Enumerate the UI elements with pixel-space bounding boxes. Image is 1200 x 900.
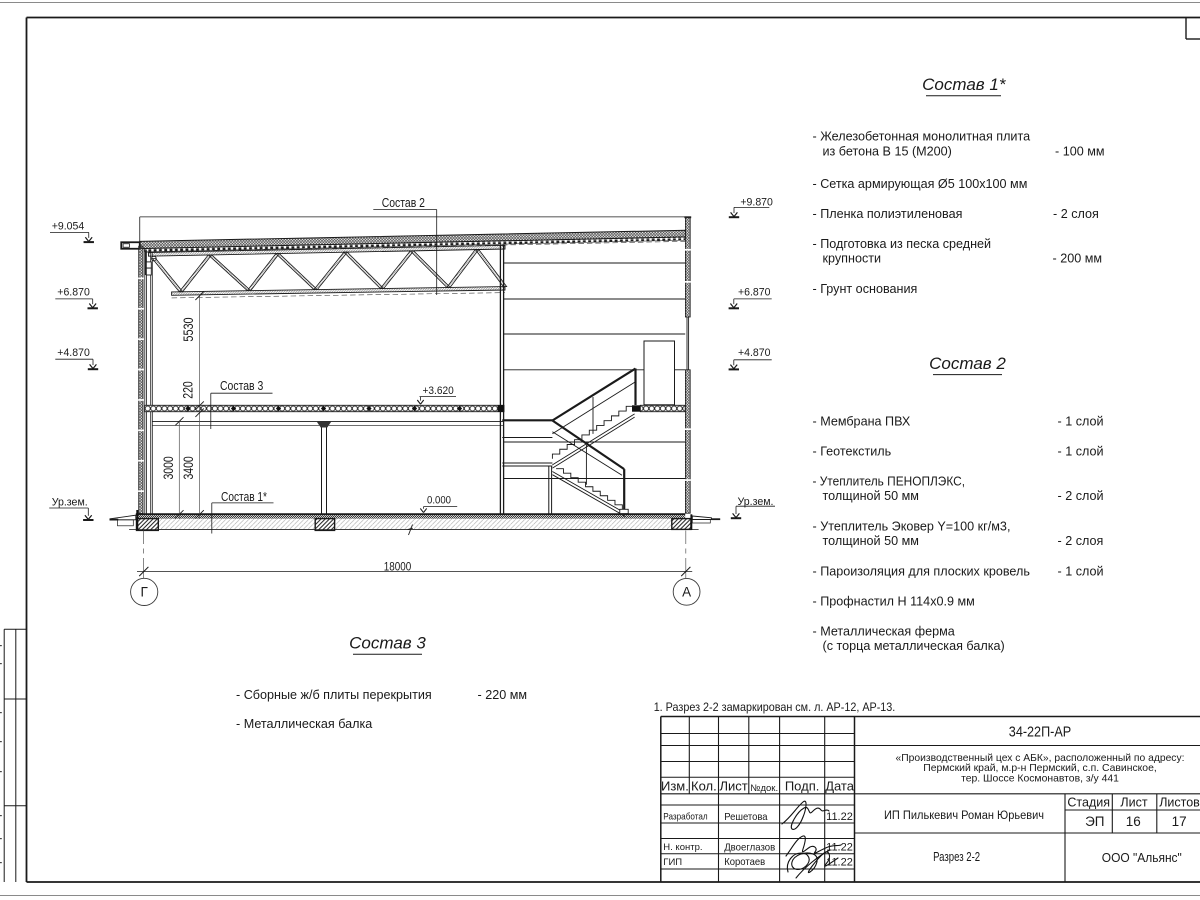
svg-text:3400: 3400 [180, 456, 196, 479]
svg-text:34-22П-АР: 34-22П-АР [1009, 724, 1071, 740]
svg-text:- Сетка армирующая Ø5 100х100: - Сетка армирующая Ø5 100х100 мм [813, 177, 1028, 191]
svg-text:+6.870: +6.870 [738, 286, 771, 298]
svg-text:из бетона В 15 (М200): из бетона В 15 (М200) [823, 144, 952, 158]
svg-text:- Утеплитель Эковер Y=100 кг/м: - Утеплитель Эковер Y=100 кг/м3, [813, 519, 1011, 533]
svg-text:Коротаев: Коротаев [724, 856, 765, 868]
svg-text:- Пароизоляция для плоских кро: - Пароизоляция для плоских кровель [813, 564, 1031, 578]
svg-text:- Пленка полиэтиленовая: - Пленка полиэтиленовая [813, 207, 963, 221]
svg-text:- Железобетонная монолитная п: - Железобетонная монолитная плита [813, 130, 1031, 144]
svg-text:11.22: 11.22 [826, 811, 853, 823]
svg-text:Подп.: Подп. [785, 778, 820, 793]
svg-text:- Профнастил Н 114х0.9 мм: - Профнастил Н 114х0.9 мм [813, 594, 975, 608]
svg-text:Лист: Лист [1120, 796, 1147, 810]
svg-text:толщиной 50 мм: толщиной 50 мм [823, 534, 919, 548]
svg-text:17: 17 [1172, 814, 1187, 829]
svg-text:Двоеглазов: Двоеглазов [724, 841, 775, 853]
svg-text:Разработал: Разработал [663, 812, 707, 823]
svg-text:толщиной 50 мм: толщиной 50 мм [823, 489, 919, 503]
svg-text:крупности: крупности [823, 251, 882, 265]
svg-text:Кол.: Кол. [691, 778, 717, 793]
svg-text:- 1 слой: - 1 слой [1058, 414, 1104, 428]
svg-text:11.22: 11.22 [826, 842, 853, 854]
svg-text:ЭП: ЭП [1085, 814, 1104, 829]
svg-text:+4.870: +4.870 [57, 347, 90, 359]
svg-text:- Подготовка из песка средней: - Подготовка из песка средней [813, 237, 992, 251]
svg-text:+3.620: +3.620 [423, 385, 454, 397]
svg-text:3000: 3000 [160, 456, 176, 479]
svg-text:+4.870: +4.870 [738, 347, 771, 359]
svg-text:+9.870: +9.870 [740, 196, 773, 208]
svg-text:- 2 слой: - 2 слой [1058, 489, 1104, 503]
svg-text:Листов: Листов [1159, 796, 1200, 810]
svg-text:Изм.: Изм. [661, 778, 689, 793]
svg-text:Н. контр.: Н. контр. [663, 842, 702, 853]
svg-text:- 100 мм: - 100 мм [1055, 144, 1105, 158]
svg-text:(с торца металлическая балка): (с торца металлическая балка) [823, 639, 1005, 653]
svg-text:А: А [682, 585, 691, 600]
svg-text:Дата: Дата [825, 778, 855, 793]
svg-text:16: 16 [1126, 814, 1141, 829]
svg-text:- Сборные ж/б плиты перекрыти: - Сборные ж/б плиты перекрытия [236, 688, 432, 702]
svg-text:11.22: 11.22 [826, 856, 853, 868]
svg-text:№док.: №док. [750, 783, 778, 794]
svg-text:Решетова: Решетова [724, 811, 768, 823]
svg-text:- Геотекстиль: - Геотекстиль [813, 444, 892, 458]
svg-text:- Металлическая балка: - Металлическая балка [236, 717, 372, 731]
svg-text:220: 220 [180, 381, 196, 399]
svg-text:Состав 1*: Состав 1* [221, 489, 267, 504]
svg-text:- 2 слоя: - 2 слоя [1053, 207, 1099, 221]
svg-text:- 220 мм: - 220 мм [478, 688, 528, 702]
svg-text:Г: Г [141, 585, 149, 600]
svg-text:Разрез 2-2: Разрез 2-2 [933, 850, 980, 864]
svg-text:18000: 18000 [384, 561, 412, 573]
svg-text:- Мембрана ПВХ: - Мембрана ПВХ [813, 414, 911, 428]
svg-text:ГИП: ГИП [663, 857, 682, 868]
svg-text:- 2 слоя: - 2 слоя [1058, 534, 1104, 548]
svg-text:- Металлическая ферма: - Металлическая ферма [813, 624, 955, 638]
svg-text:- Утеплитель ПЕНОПЛЭКС,: - Утеплитель ПЕНОПЛЭКС, [813, 474, 966, 488]
svg-text:Лист: Лист [719, 778, 747, 793]
svg-text:+9.054: +9.054 [52, 220, 84, 232]
svg-text:ИП Пилькевич Роман Юрьевич: ИП Пилькевич Роман Юрьевич [884, 810, 1044, 822]
svg-text:+6.870: +6.870 [57, 286, 90, 298]
svg-text:1. Разрез 2-2 замаркирован см.: 1. Разрез 2-2 замаркирован см. л. АР-12,… [654, 700, 896, 714]
svg-text:Стадия: Стадия [1067, 796, 1110, 810]
svg-text:«Производственный цех с АБК»,: «Производственный цех с АБК», расположен… [896, 752, 1185, 764]
svg-text:Состав 2: Состав 2 [382, 195, 425, 210]
svg-text:- Грунт основания: - Грунт основания [813, 282, 918, 296]
svg-text:- 1 слой: - 1 слой [1058, 564, 1104, 578]
svg-text:ООО "Альянс": ООО "Альянс" [1102, 850, 1182, 865]
svg-text:Состав 3: Состав 3 [220, 378, 263, 393]
svg-text:тер. Шоссе Космонавтов, з/у 44: тер. Шоссе Космонавтов, з/у 441 [961, 773, 1119, 784]
svg-text:- 200 мм: - 200 мм [1053, 251, 1103, 265]
svg-text:- 1 слой: - 1 слой [1058, 444, 1104, 458]
svg-text:5530: 5530 [180, 317, 196, 341]
svg-text:Состав 1*: Состав 1* [922, 75, 1007, 94]
svg-text:Состав 2: Состав 2 [929, 354, 1006, 373]
svg-text:Ур.зем.: Ур.зем. [52, 497, 88, 509]
svg-text:Состав 3: Состав 3 [349, 634, 426, 653]
svg-text:0.000: 0.000 [427, 494, 451, 506]
